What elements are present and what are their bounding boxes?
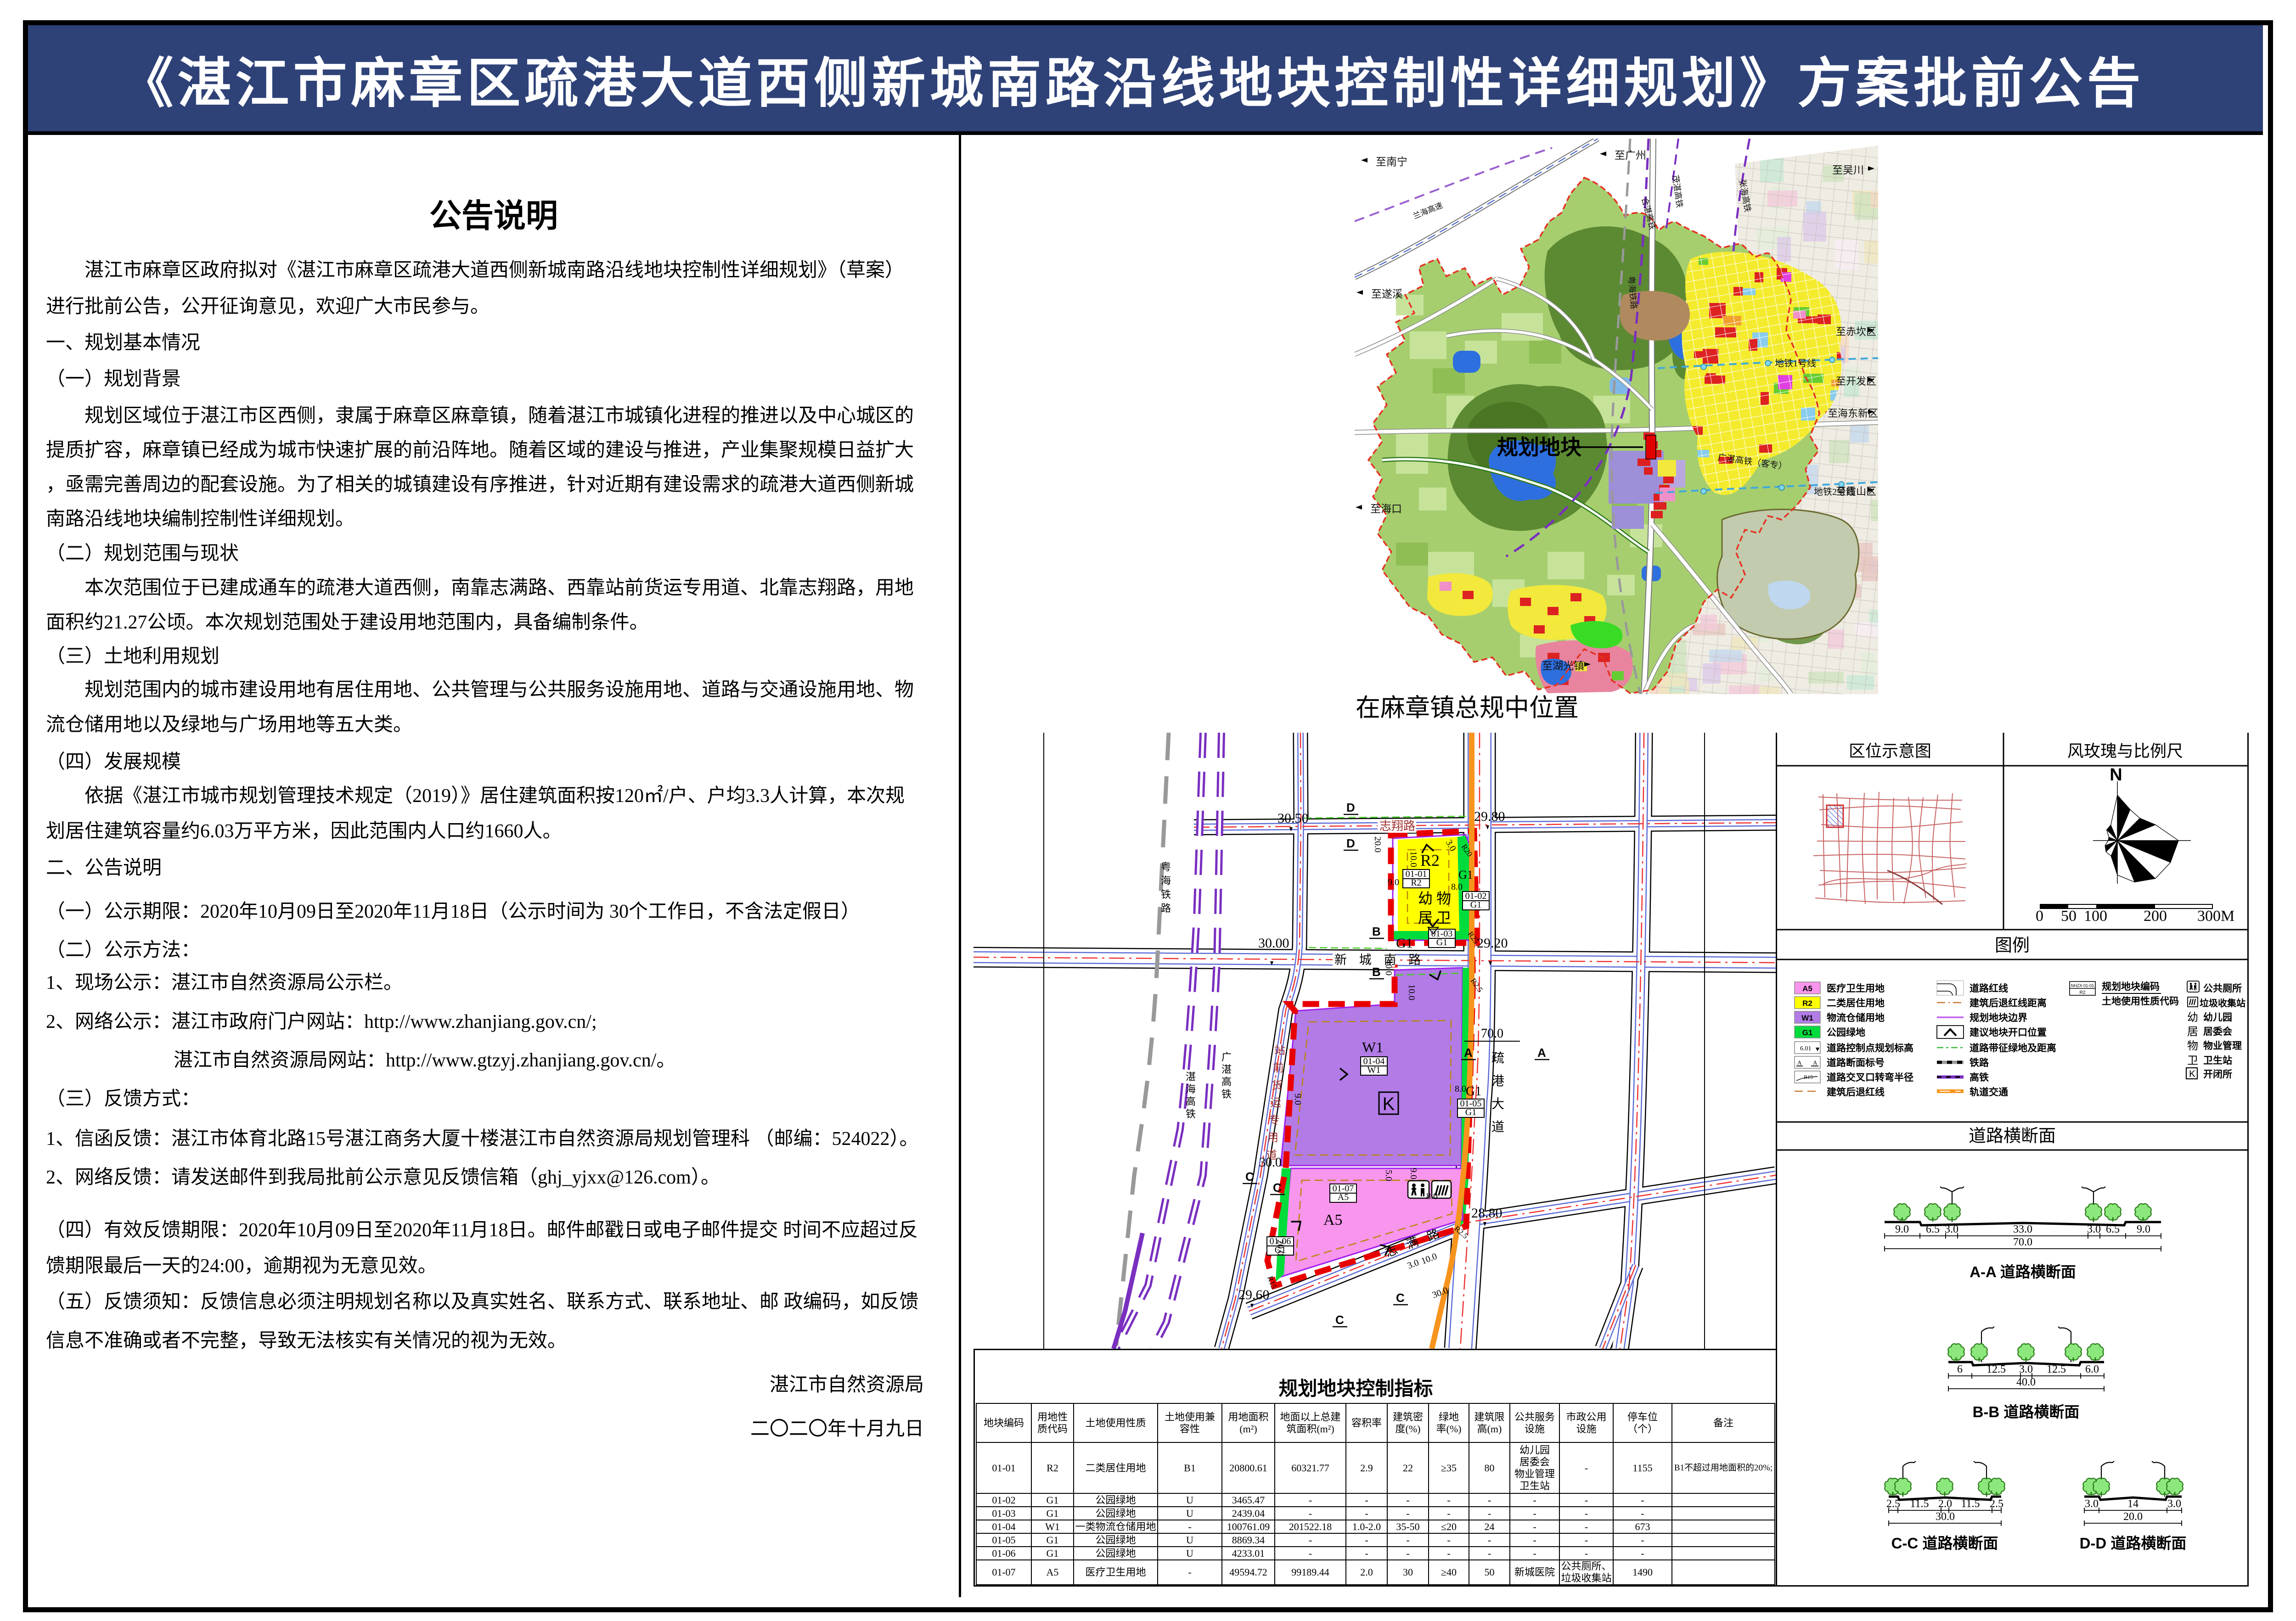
- svg-text:12.5: 12.5: [2047, 1363, 2066, 1375]
- svg-text:疏: 疏: [1491, 1051, 1504, 1066]
- svg-text:医疗卫生用地: 医疗卫生用地: [1827, 983, 1885, 994]
- svg-text:开闭所: 开闭所: [2203, 1069, 2232, 1080]
- svg-text:11.5: 11.5: [1961, 1498, 1980, 1510]
- svg-text:A: A: [1797, 1059, 1802, 1066]
- svg-text:C: C: [1245, 1170, 1254, 1183]
- svg-text:6.5: 6.5: [2106, 1223, 2120, 1235]
- svg-text:A: A: [1464, 1046, 1473, 1060]
- svg-text:20.0: 20.0: [1373, 836, 1383, 853]
- svg-text:专: 专: [1269, 1114, 1280, 1127]
- svg-text:至开发区: 至开发区: [1836, 376, 1876, 387]
- svg-text:D: D: [1346, 801, 1355, 814]
- svg-text:C: C: [1273, 1181, 1282, 1195]
- svg-text:40.0: 40.0: [1384, 959, 1394, 976]
- svg-text:垃圾收集站: 垃圾收集站: [2200, 998, 2245, 1009]
- svg-text:G1: G1: [1436, 937, 1447, 948]
- svg-text:路: 路: [1161, 903, 1171, 914]
- svg-text:G1: G1: [1465, 1107, 1476, 1117]
- svg-text:至南宁: 至南宁: [1376, 156, 1407, 168]
- svg-text:0: 0: [2036, 908, 2043, 925]
- svg-text:G1: G1: [1802, 1028, 1813, 1037]
- svg-text:W1: W1: [1801, 1014, 1813, 1022]
- svg-text:粤: 粤: [1161, 861, 1171, 873]
- svg-text:10.0: 10.0: [1408, 851, 1418, 867]
- svg-text:A-A 道路横断面: A-A 道路横断面: [1970, 1263, 2076, 1280]
- svg-text:A: A: [1813, 1059, 1818, 1066]
- svg-text:至吴川: 至吴川: [1832, 164, 1864, 176]
- svg-text:8.0: 8.0: [1451, 882, 1463, 892]
- svg-text:G1: G1: [1458, 868, 1473, 881]
- svg-text:20.0: 20.0: [1275, 1240, 1285, 1256]
- svg-text:土地使用性质代码: 土地使用性质代码: [2102, 996, 2179, 1007]
- svg-text:6.01: 6.01: [1800, 1045, 1812, 1052]
- svg-text:至广州: 至广州: [1615, 150, 1646, 161]
- svg-text:NHZX-01-01: NHZX-01-01: [2071, 983, 2094, 988]
- svg-text:B-B 道路横断面: B-B 道路横断面: [1973, 1403, 2080, 1420]
- svg-text:R2: R2: [1802, 999, 1812, 1008]
- svg-text:建议地块开口位置: 建议地块开口位置: [1970, 1027, 2047, 1038]
- svg-text:D: D: [1346, 836, 1355, 850]
- svg-text:湛: 湛: [1221, 1064, 1232, 1075]
- svg-text:R2: R2: [2080, 990, 2086, 995]
- svg-text:卫生站: 卫生站: [2203, 1055, 2232, 1066]
- svg-text:R2: R2: [1420, 851, 1440, 869]
- svg-text:30.0: 30.0: [1259, 1155, 1282, 1170]
- svg-text:居: 居: [2187, 1026, 2198, 1038]
- svg-text:6: 6: [1957, 1363, 1963, 1375]
- svg-text:3.0: 3.0: [2085, 1498, 2099, 1510]
- svg-text:铁: 铁: [1161, 889, 1171, 900]
- svg-text:道路横断面: 道路横断面: [1969, 1127, 2056, 1146]
- svg-text:14: 14: [2127, 1498, 2138, 1510]
- svg-text:道路交叉口转弯半径: 道路交叉口转弯半径: [1827, 1072, 1913, 1083]
- svg-text:至海口: 至海口: [1370, 503, 1402, 515]
- svg-text:建筑后退红线: 建筑后退红线: [1827, 1087, 1885, 1098]
- svg-text:铁: 铁: [1221, 1088, 1232, 1100]
- svg-text:物业管理: 物业管理: [2203, 1040, 2242, 1051]
- svg-text:湛: 湛: [1186, 1071, 1196, 1083]
- svg-text:道路红线: 道路红线: [1970, 983, 2008, 994]
- svg-text:大: 大: [1491, 1097, 1504, 1111]
- svg-text:C: C: [1396, 1291, 1405, 1305]
- svg-text:30.0: 30.0: [1936, 1511, 1955, 1523]
- svg-text:8.0: 8.0: [1455, 1084, 1466, 1094]
- svg-text:图例: 图例: [1995, 936, 2030, 955]
- svg-text:9.0: 9.0: [1408, 1168, 1418, 1179]
- svg-text:9.0: 9.0: [1388, 877, 1399, 887]
- svg-text:N: N: [2110, 765, 2122, 785]
- svg-text:A5: A5: [1802, 984, 1812, 993]
- svg-text:二类居住用地: 二类居住用地: [1827, 998, 1885, 1009]
- svg-text:6.5: 6.5: [1926, 1223, 1940, 1235]
- svg-text:A: A: [1537, 1046, 1546, 1060]
- svg-text:道路带征绿地及距离: 道路带征绿地及距离: [1970, 1043, 2056, 1054]
- svg-text:30.50: 30.50: [1277, 811, 1309, 826]
- svg-text:R15: R15: [1804, 1074, 1813, 1080]
- svg-text:200: 200: [2144, 908, 2167, 925]
- svg-text:3.0: 3.0: [2087, 1223, 2101, 1235]
- svg-text:轨道交通: 轨道交通: [1970, 1087, 2008, 1098]
- svg-text:物: 物: [2187, 1040, 2198, 1052]
- svg-text:规划地块编码: 规划地块编码: [2102, 981, 2160, 992]
- svg-text:100: 100: [2084, 908, 2107, 925]
- svg-text:卫: 卫: [2187, 1055, 2198, 1067]
- svg-text:G1: G1: [1466, 1084, 1481, 1099]
- svg-text:33.0: 33.0: [2013, 1223, 2032, 1235]
- svg-text:风玫瑰与比例尺: 风玫瑰与比例尺: [2067, 742, 2183, 760]
- svg-text:5.0: 5.0: [1384, 1170, 1394, 1181]
- svg-text:G1: G1: [1470, 900, 1481, 910]
- svg-text:B: B: [1372, 965, 1381, 979]
- svg-text:A5: A5: [1338, 1192, 1349, 1202]
- svg-text:11.5: 11.5: [1910, 1498, 1929, 1510]
- svg-text:公园绿地: 公园绿地: [1827, 1027, 1865, 1038]
- svg-text:地铁2号线: 地铁2号线: [1814, 487, 1855, 497]
- svg-text:幼: 幼: [2187, 1011, 2198, 1024]
- svg-text:29.60: 29.60: [1238, 1287, 1270, 1302]
- svg-text:28.80: 28.80: [1471, 1206, 1503, 1221]
- svg-text:29.80: 29.80: [1474, 809, 1505, 824]
- svg-text:2.5: 2.5: [1886, 1498, 1900, 1510]
- svg-text:C: C: [1335, 1313, 1344, 1327]
- svg-text:40.0: 40.0: [2016, 1376, 2036, 1388]
- svg-text:站: 站: [1274, 1044, 1285, 1057]
- svg-text:9.0: 9.0: [1293, 1094, 1303, 1105]
- svg-text:10.0: 10.0: [1407, 984, 1417, 1000]
- svg-text:9.0: 9.0: [2137, 1223, 2150, 1235]
- svg-text:前: 前: [1273, 1062, 1284, 1074]
- svg-text:2.0: 2.0: [1938, 1498, 1952, 1510]
- svg-text:广: 广: [1221, 1051, 1232, 1063]
- svg-text:铁路: 铁路: [1970, 1057, 1989, 1068]
- svg-text:8.0: 8.0: [1426, 1191, 1438, 1201]
- svg-text:W1: W1: [1362, 1039, 1383, 1055]
- svg-text:地铁1号线: 地铁1号线: [1775, 358, 1816, 369]
- svg-text:B: B: [1372, 925, 1381, 938]
- svg-text:用: 用: [1267, 1132, 1278, 1144]
- svg-text:高铁: 高铁: [1970, 1072, 1989, 1083]
- svg-text:D-D 道路横断面: D-D 道路横断面: [2080, 1535, 2187, 1552]
- svg-text:高: 高: [1221, 1076, 1232, 1088]
- svg-text:至遂溪: 至遂溪: [1371, 288, 1403, 300]
- svg-text:70.0: 70.0: [1481, 1026, 1503, 1041]
- svg-text:规划地块: 规划地块: [1497, 436, 1581, 459]
- svg-text:G1: G1: [1396, 936, 1413, 951]
- svg-text:海: 海: [1186, 1083, 1196, 1095]
- svg-text:幼 物: 幼 物: [1418, 890, 1451, 907]
- svg-text:29.20: 29.20: [1477, 936, 1508, 951]
- svg-text:至海东新区: 至海东新区: [1828, 408, 1878, 419]
- svg-text:300M: 300M: [2197, 908, 2234, 925]
- svg-text:3.0: 3.0: [1945, 1223, 1958, 1235]
- svg-text:道路断面标号: 道路断面标号: [1827, 1057, 1885, 1068]
- svg-text:运: 运: [1270, 1097, 1281, 1109]
- svg-text:50: 50: [2061, 908, 2077, 925]
- svg-text:12.5: 12.5: [1986, 1363, 2006, 1375]
- svg-text:W1: W1: [1367, 1065, 1381, 1075]
- svg-text:海: 海: [1161, 875, 1171, 886]
- svg-text:公共厕所: 公共厕所: [2203, 983, 2242, 994]
- svg-text:3.0: 3.0: [2019, 1363, 2033, 1375]
- svg-text:至赤坎区: 至赤坎区: [1836, 326, 1876, 337]
- svg-text:规划地块边界: 规划地块边界: [1970, 1012, 2027, 1023]
- svg-text:高: 高: [1186, 1096, 1196, 1107]
- svg-text:港: 港: [1491, 1074, 1504, 1088]
- svg-text:K: K: [1383, 1094, 1395, 1114]
- svg-text:至湖光镇: 至湖光镇: [1542, 660, 1584, 672]
- svg-text:C-C 道路横断面: C-C 道路横断面: [1891, 1535, 1998, 1552]
- svg-text:20.0: 20.0: [2123, 1511, 2143, 1523]
- svg-text:3.0: 3.0: [2167, 1498, 2181, 1510]
- svg-text:货: 货: [1272, 1079, 1283, 1092]
- svg-text:志翔路: 志翔路: [1379, 819, 1415, 833]
- svg-text:9.0: 9.0: [1895, 1223, 1909, 1235]
- svg-text:70.0: 70.0: [2013, 1236, 2032, 1248]
- svg-text:道: 道: [1491, 1120, 1504, 1134]
- svg-text:居委会: 居委会: [2203, 1026, 2232, 1037]
- svg-text:铁: 铁: [1186, 1108, 1196, 1120]
- svg-text:6.0: 6.0: [2085, 1363, 2099, 1375]
- svg-text:物流仓储用地: 物流仓储用地: [1827, 1012, 1885, 1023]
- svg-text:K: K: [2189, 1069, 2195, 1079]
- svg-text:A5: A5: [1323, 1212, 1343, 1228]
- svg-text:30.00: 30.00: [1258, 936, 1289, 951]
- svg-text:幼儿园: 幼儿园: [2203, 1012, 2232, 1023]
- svg-text:2.5: 2.5: [1990, 1498, 2003, 1510]
- svg-text:R2: R2: [1411, 878, 1421, 888]
- svg-text:区位示意图: 区位示意图: [1849, 742, 1931, 760]
- svg-text:建筑后退红线距离: 建筑后退红线距离: [1970, 998, 2047, 1009]
- svg-text:道路控制点规划标高: 道路控制点规划标高: [1827, 1043, 1913, 1054]
